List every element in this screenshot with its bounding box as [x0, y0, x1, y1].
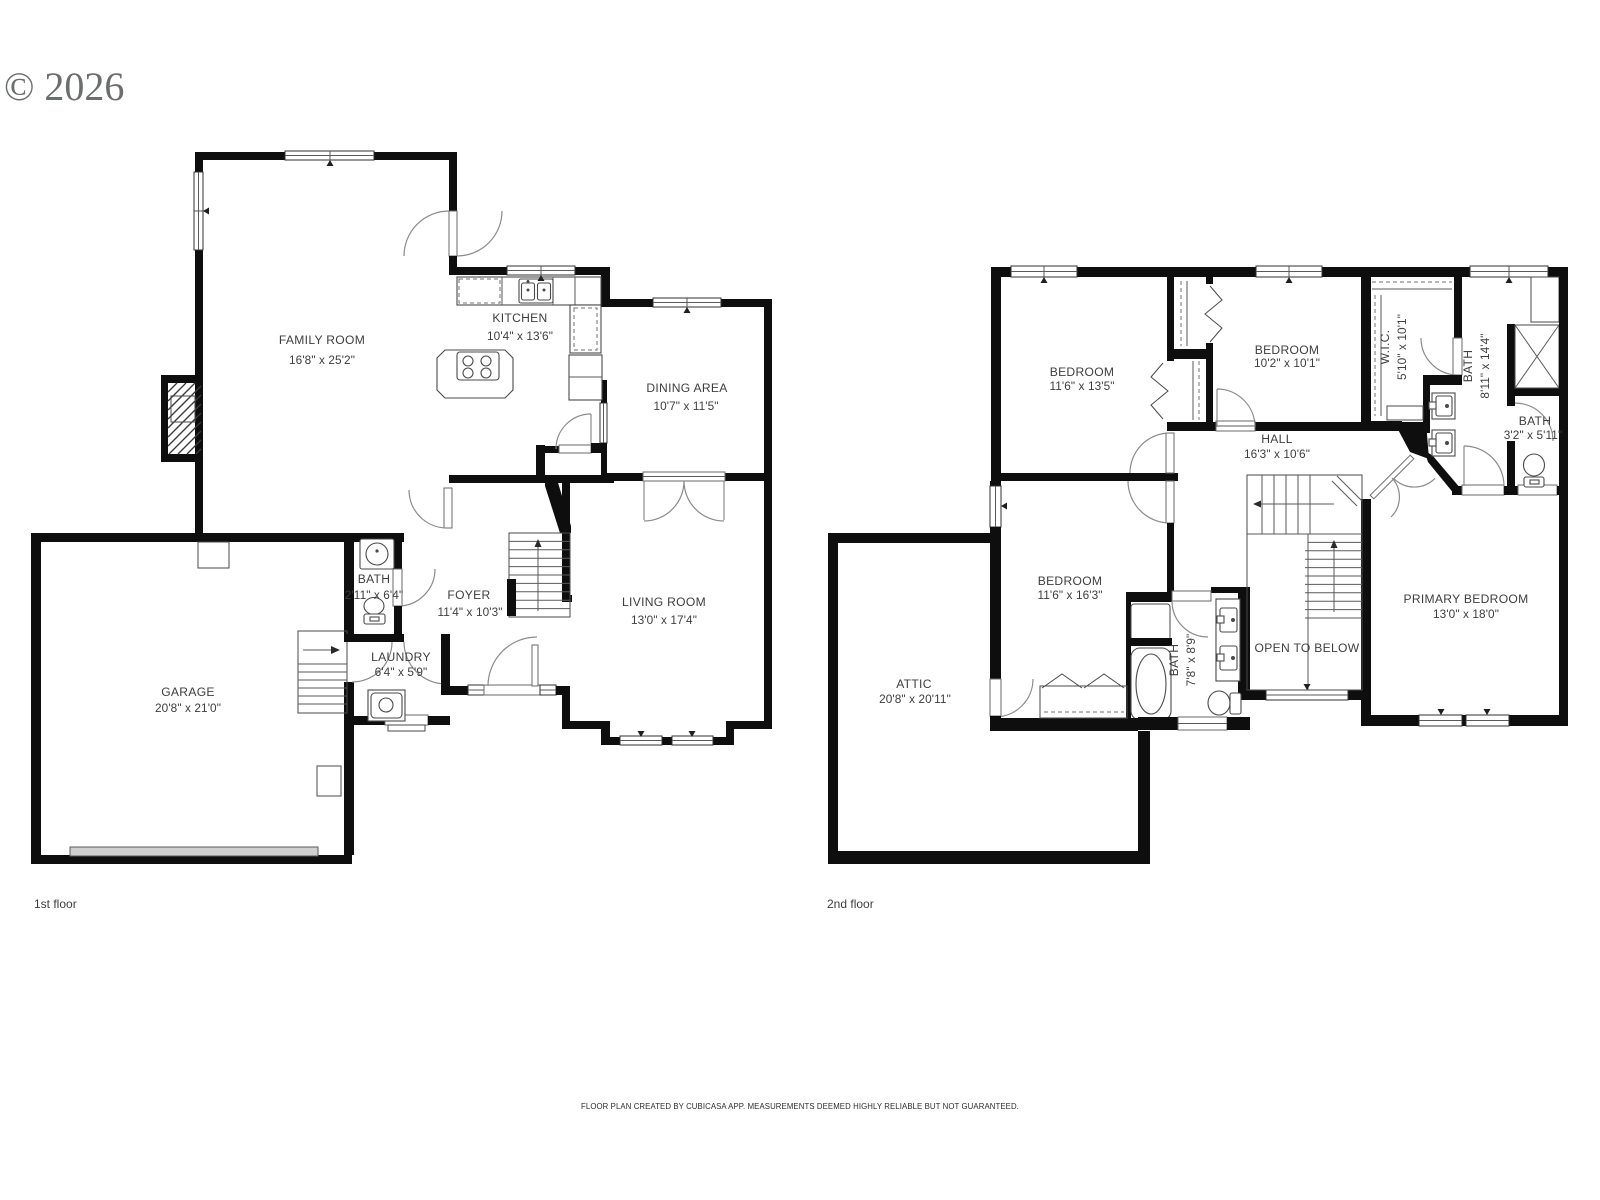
svg-text:BEDROOM: BEDROOM [1050, 365, 1115, 379]
svg-text:KITCHEN: KITCHEN [492, 311, 547, 325]
svg-text:ATTIC: ATTIC [896, 677, 932, 691]
svg-text:11'4" x 10'3": 11'4" x 10'3" [437, 605, 502, 619]
svg-text:1st floor: 1st floor [34, 897, 77, 911]
svg-text:16'8" x 25'2": 16'8" x 25'2" [289, 353, 355, 367]
svg-text:8'11" x 14'4": 8'11" x 14'4" [1478, 333, 1492, 398]
svg-text:5'10" x 10'1": 5'10" x 10'1" [1395, 314, 1409, 380]
svg-text:BATH: BATH [358, 572, 391, 586]
svg-text:20'8" x 21'0": 20'8" x 21'0" [155, 701, 221, 715]
svg-text:BATH: BATH [1167, 644, 1181, 677]
svg-text:11'6" x 16'3": 11'6" x 16'3" [1037, 588, 1102, 602]
svg-text:FLOOR PLAN CREATED BY CUBICASA: FLOOR PLAN CREATED BY CUBICASA APP. MEAS… [581, 1102, 1019, 1111]
svg-text:10'4" x 13'6": 10'4" x 13'6" [487, 329, 553, 343]
svg-text:10'2" x 10'1": 10'2" x 10'1" [1254, 356, 1320, 370]
svg-text:11'6" x 13'5": 11'6" x 13'5" [1049, 379, 1114, 393]
svg-text:16'3" x 10'6": 16'3" x 10'6" [1244, 447, 1310, 461]
svg-text:© 2026: © 2026 [4, 64, 124, 109]
svg-text:BEDROOM: BEDROOM [1255, 343, 1320, 357]
svg-text:GARAGE: GARAGE [161, 685, 215, 699]
svg-text:LIVING ROOM: LIVING ROOM [622, 595, 706, 609]
svg-text:6'4" x 5'9": 6'4" x 5'9" [375, 665, 428, 679]
svg-text:FAMILY ROOM: FAMILY ROOM [279, 333, 365, 347]
svg-text:13'0" x 17'4": 13'0" x 17'4" [631, 613, 697, 627]
svg-text:OPEN TO BELOW: OPEN TO BELOW [1255, 641, 1360, 655]
svg-text:2'11" x 6'4": 2'11" x 6'4" [345, 588, 403, 602]
svg-text:HALL: HALL [1261, 432, 1292, 446]
svg-text:DINING AREA: DINING AREA [646, 381, 728, 395]
svg-text:7'8" x 8'9": 7'8" x 8'9" [1184, 634, 1198, 687]
svg-text:LAUNDRY: LAUNDRY [371, 650, 431, 664]
svg-text:3'2" x 5'11": 3'2" x 5'11" [1504, 428, 1562, 442]
svg-text:13'0" x 18'0": 13'0" x 18'0" [1433, 607, 1499, 621]
svg-text:20'8" x 20'11": 20'8" x 20'11" [879, 692, 951, 706]
svg-text:2nd floor: 2nd floor [827, 897, 874, 911]
svg-text:BATH: BATH [1461, 350, 1475, 383]
svg-text:BATH: BATH [1519, 414, 1552, 428]
svg-text:10'7" x 11'5": 10'7" x 11'5" [653, 399, 718, 413]
svg-text:PRIMARY BEDROOM: PRIMARY BEDROOM [1403, 592, 1528, 606]
svg-text:BEDROOM: BEDROOM [1038, 574, 1103, 588]
svg-text:W.I.C.: W.I.C. [1378, 330, 1392, 365]
svg-text:FOYER: FOYER [447, 588, 490, 602]
